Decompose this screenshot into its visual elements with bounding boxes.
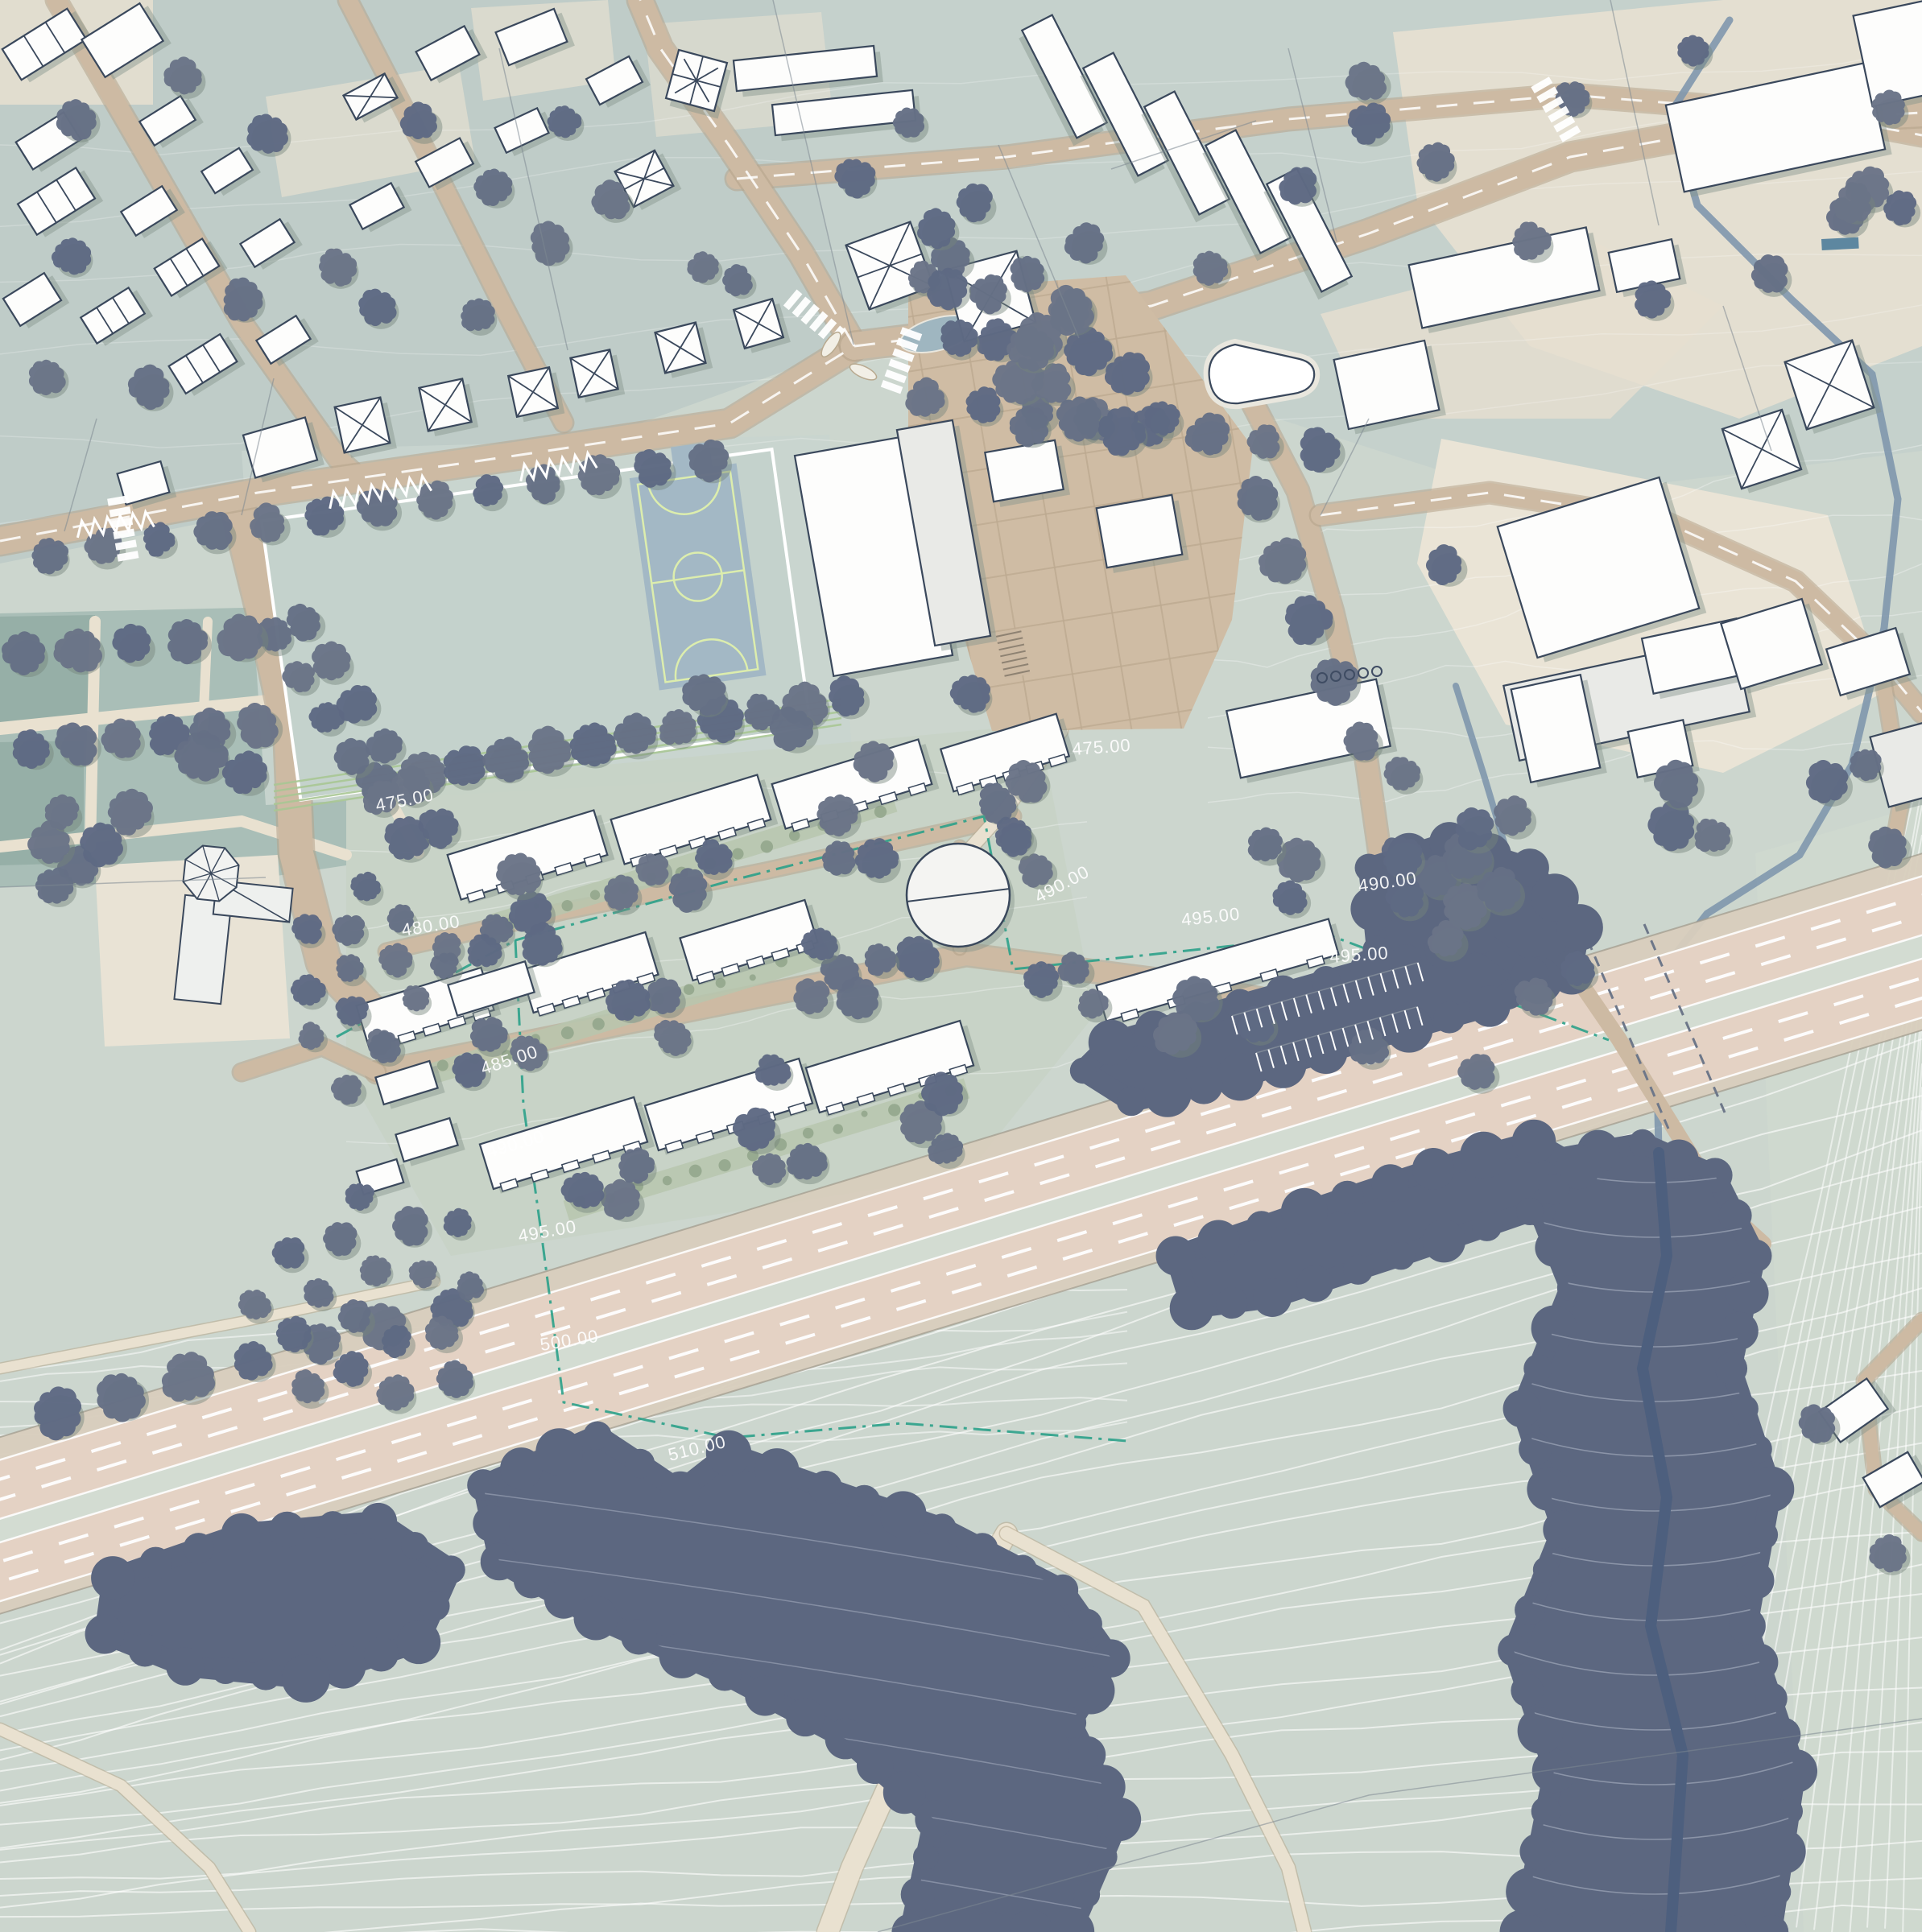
house-hip-roof [508,366,564,423]
forest-edge-canopy [183,1533,213,1563]
map-canvas: 475.00480.00485.00490.00495.00500.00510.… [0,0,1922,1932]
forest-edge-canopy [420,1591,449,1620]
house-hip-roof [335,396,397,459]
forest-edge-canopy [1543,1510,1581,1548]
forest-edge-canopy [318,1511,347,1540]
forest-edge-canopy [848,1485,880,1517]
forest-edge-canopy [1511,1674,1544,1707]
forest-edge-canopy [708,1657,741,1690]
forest-edge-canopy [661,1472,700,1510]
forest-edge-canopy [1469,985,1510,1026]
forest-edge-canopy [535,1428,583,1476]
forest-edge-canopy [1217,1054,1264,1101]
forest-edge-canopy [1068,1667,1115,1715]
forest-edge-canopy [1749,1467,1795,1513]
forest-edge-canopy [1531,1306,1577,1352]
forest-edge-canopy [129,1634,162,1667]
forest-edge-canopy [1253,1278,1292,1317]
forest-edge-canopy [880,1491,927,1538]
forest-edge-canopy [1460,1132,1507,1179]
forest-edge-canopy [913,1844,939,1870]
forest-edge-canopy [1755,1682,1788,1715]
forest-edge-canopy [1512,1120,1556,1163]
forest-edge-canopy [621,1619,656,1654]
forest-edge-canopy [1556,904,1603,951]
forest-edge-canopy [1312,966,1341,995]
forest-edge-canopy [1764,1878,1792,1905]
forest-edge-canopy [1423,1220,1465,1262]
forest-edge-canopy [1519,1432,1552,1465]
teardrop-hall [1209,345,1315,403]
forest-edge-canopy [1539,1174,1570,1205]
forest-edge-canopy [857,1748,893,1784]
forest-edge-canopy [928,1513,956,1542]
forest-edge-canopy [1744,1435,1772,1463]
forest-edge-canopy [808,1471,842,1505]
forest-edge-canopy [583,1421,611,1449]
forest-edge-canopy [1519,1833,1556,1869]
forest-edge-canopy [1097,1798,1141,1841]
forest-edge-canopy [1531,1797,1561,1827]
forest-edge-canopy [1331,1181,1364,1214]
forest-edge-canopy [473,1505,509,1542]
forest-edge-canopy [1715,1352,1747,1385]
forest-edge-canopy [1143,1069,1192,1117]
building-footprint [1097,495,1183,568]
forest-edge-canopy [967,1533,998,1564]
forest-edge-canopy [1070,1058,1096,1084]
forest-edge-canopy [1197,1220,1239,1262]
forest-edge-canopy [1737,1562,1775,1600]
forest-edge-canopy [1533,1557,1559,1583]
forest-edge-canopy [1387,1242,1416,1270]
forest-edge-canopy [85,1615,125,1654]
forest-edge-canopy [1515,1595,1545,1625]
forest-edge-canopy [659,1633,704,1678]
forest-edge-canopy [1056,1707,1086,1738]
forest-edge-canopy [626,1449,655,1478]
forest-edge-canopy [364,1637,399,1671]
forest-edge-canopy [1156,1236,1196,1276]
tree-canopy [1872,89,1905,125]
forest-edge-canopy [91,1556,134,1600]
forest-edge-canopy [360,1503,397,1540]
forest-edge-canopy [745,1676,785,1716]
forest-edge-canopy [1535,1228,1573,1266]
tree-canopy [1694,819,1730,852]
forest-edge-canopy [166,1647,205,1686]
tree-canopy [1010,256,1044,292]
forest-edge-canopy [282,1654,330,1703]
forest-edge-canopy [397,1620,440,1664]
forest-edge-canopy [1371,1164,1409,1202]
house-hip-roof [570,349,625,404]
tree-canopy [1850,749,1882,781]
forest-edge-canopy [786,1699,825,1737]
building [1097,494,1189,574]
forest-edge-canopy [269,1512,304,1547]
forest-edge-canopy [1720,1312,1759,1351]
forest-edge-canopy [1506,1868,1554,1916]
forest-edge-canopy [1629,1129,1656,1157]
forest-edge-canopy [1730,1395,1758,1422]
forest-edge-canopy [1527,1468,1570,1511]
forest-edge-canopy [1412,1148,1454,1190]
forest-edge-canopy [1739,1240,1772,1273]
forest-edge-canopy [139,1547,172,1579]
forest-edge-canopy [544,1580,583,1619]
tree-canopy [444,745,486,786]
forest-edge-canopy [1697,1158,1732,1192]
forest-edge-canopy [1259,1042,1306,1088]
forest-edge-canopy [901,1877,936,1912]
forest-edge-canopy [1074,1881,1100,1907]
forest-edge-canopy [1433,1001,1465,1033]
forest-edge-canopy [1726,1272,1768,1315]
forest-edge-canopy [1516,1198,1544,1225]
forest-edge-canopy [1557,1275,1583,1301]
forest-edge-canopy [1246,1211,1277,1241]
site-plan-map[interactable]: 475.00480.00485.00490.00495.00500.00510.… [0,0,1922,1932]
forest-edge-canopy [1170,1286,1214,1331]
forest-edge-canopy [1761,1829,1805,1873]
forest-edge-canopy [1297,1265,1333,1302]
forest-edge-canopy [1008,1555,1037,1584]
forest-edge-canopy [1503,1390,1541,1428]
forest-edge-canopy [1767,1718,1801,1752]
forest-edge-canopy [1048,1575,1078,1605]
forest-edge-canopy [212,1657,239,1684]
forest-edge-canopy [1385,1005,1432,1052]
house-hip-roof [419,378,478,438]
forest-edge-canopy [1343,1255,1373,1285]
forest-edge-canopy [250,1658,281,1690]
forest-edge-canopy [1089,1020,1135,1066]
forest-edge-canopy [883,1771,926,1814]
forest-edge-canopy [1774,1749,1817,1793]
forest-edge-canopy [1472,1212,1502,1241]
forest-edge-canopy [1532,1749,1577,1794]
forest-edge-canopy [514,1563,549,1598]
forest-edge-canopy [1117,1087,1146,1116]
forest-edge-canopy [1498,1634,1530,1666]
forest-edge-canopy [1216,1287,1247,1319]
forest-edge-canopy [1718,1199,1751,1232]
forest-edge-canopy [1749,1521,1778,1550]
forest-edge-canopy [436,1555,465,1584]
swimming-pool [1821,237,1859,250]
contour-label: 495.00 [1329,943,1390,967]
forest-edge-canopy [221,1513,262,1554]
tree-canopy [1248,828,1283,862]
forest-edge-canopy [755,1448,800,1492]
forest-edge-canopy [467,1469,499,1501]
forest-edge-canopy [1281,1188,1328,1235]
forest-edge-canopy [1523,1354,1552,1382]
contour-label: 475.00 [1072,735,1132,759]
forest-edge-canopy [1072,1609,1102,1640]
forest-edge-canopy [401,1532,428,1559]
